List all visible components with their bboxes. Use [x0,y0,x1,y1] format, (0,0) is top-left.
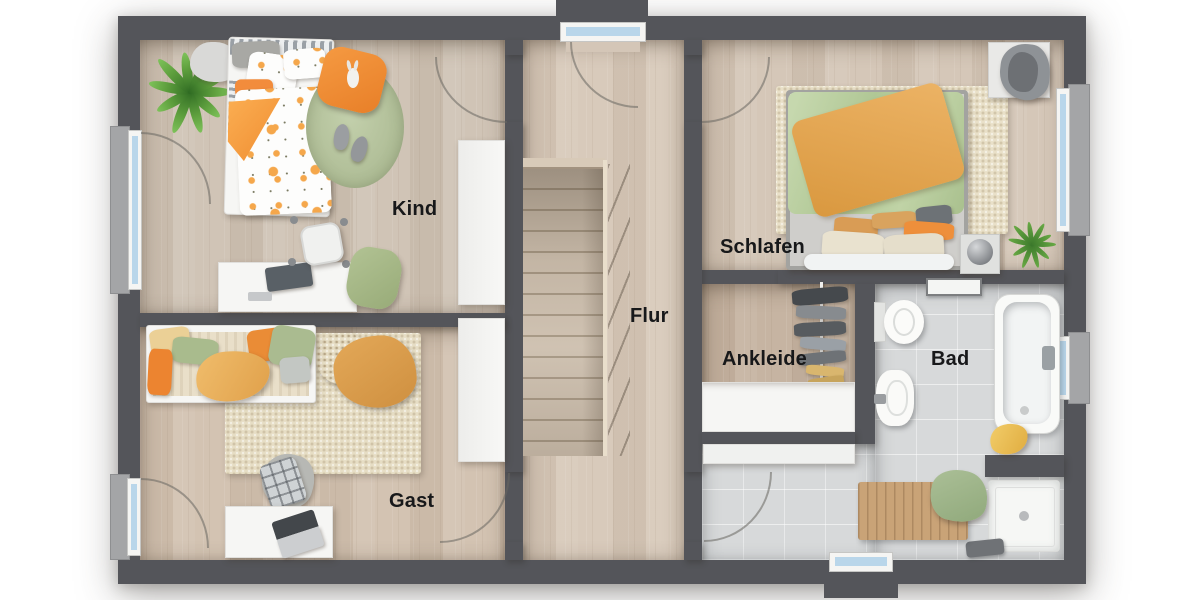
ankleide-south-wall [702,430,855,444]
stair-wall-stub-bottom [505,542,523,560]
floor-plan-canvas: Kind Flur Schlafen Ankleide Bad Gast [0,0,1200,600]
window-sill-right-schlafen [1068,84,1090,236]
stair-baluster-shadows [608,164,630,456]
window-glass-right-bad [1060,341,1066,395]
washbasin-icon [874,370,914,426]
sphere-lamp-icon [967,239,993,265]
toilet-icon [874,298,924,346]
window-sill-right-bad [1068,332,1090,404]
ledge-bad [703,444,855,464]
flur-east-wall-stub-top [684,40,702,55]
shower-partition-wall [985,455,1064,477]
room-label-ankleide: Ankleide [722,348,807,371]
bed-footboard [804,254,954,270]
room-label-schlafen: Schlafen [720,236,805,259]
towel-shelf-icon [926,278,982,296]
room-label-flur: Flur [630,305,669,328]
window-glass-left-kind [132,136,138,284]
wardrobe-gast [458,318,505,462]
stair-railing [603,160,607,456]
dresser-ankleide [702,382,855,432]
staircase [523,169,605,456]
grass-plant-icon [1008,220,1052,268]
armchair-gast [256,454,316,512]
window-glass-bottom-dormer [835,557,887,566]
window-sill-left-kind [110,126,130,294]
window-glass-top-dormer [566,27,640,36]
bed-schlafen [786,90,968,272]
wardrobe-kind [458,140,505,305]
bathtub-icon [994,294,1060,434]
daybed-gast [146,325,318,404]
flur-east-wall [684,122,702,472]
pillow-orange-gast-1 [147,348,173,395]
bench-schlafen [988,42,1052,100]
stair-wall-stub-top [505,40,523,55]
room-label-gast: Gast [389,490,434,513]
nightstand-schlafen [960,234,1000,274]
bunny-toy-icon [344,60,362,88]
window-glass-left-gast [131,484,137,550]
pillow-gray-gast [279,356,311,385]
window-glass-right-schlafen [1060,94,1066,226]
room-label-bad: Bad [931,348,969,371]
desk-chair-kind [288,214,350,270]
stair-landing-edge [523,158,605,169]
tub-faucet-icon [1042,346,1055,370]
room-label-kind: Kind [392,198,437,221]
flur-east-wall-stub-bottom [684,542,702,560]
keyboard-icon [248,292,272,301]
hanging-clothes [790,286,860,388]
stair-wall [505,122,523,472]
